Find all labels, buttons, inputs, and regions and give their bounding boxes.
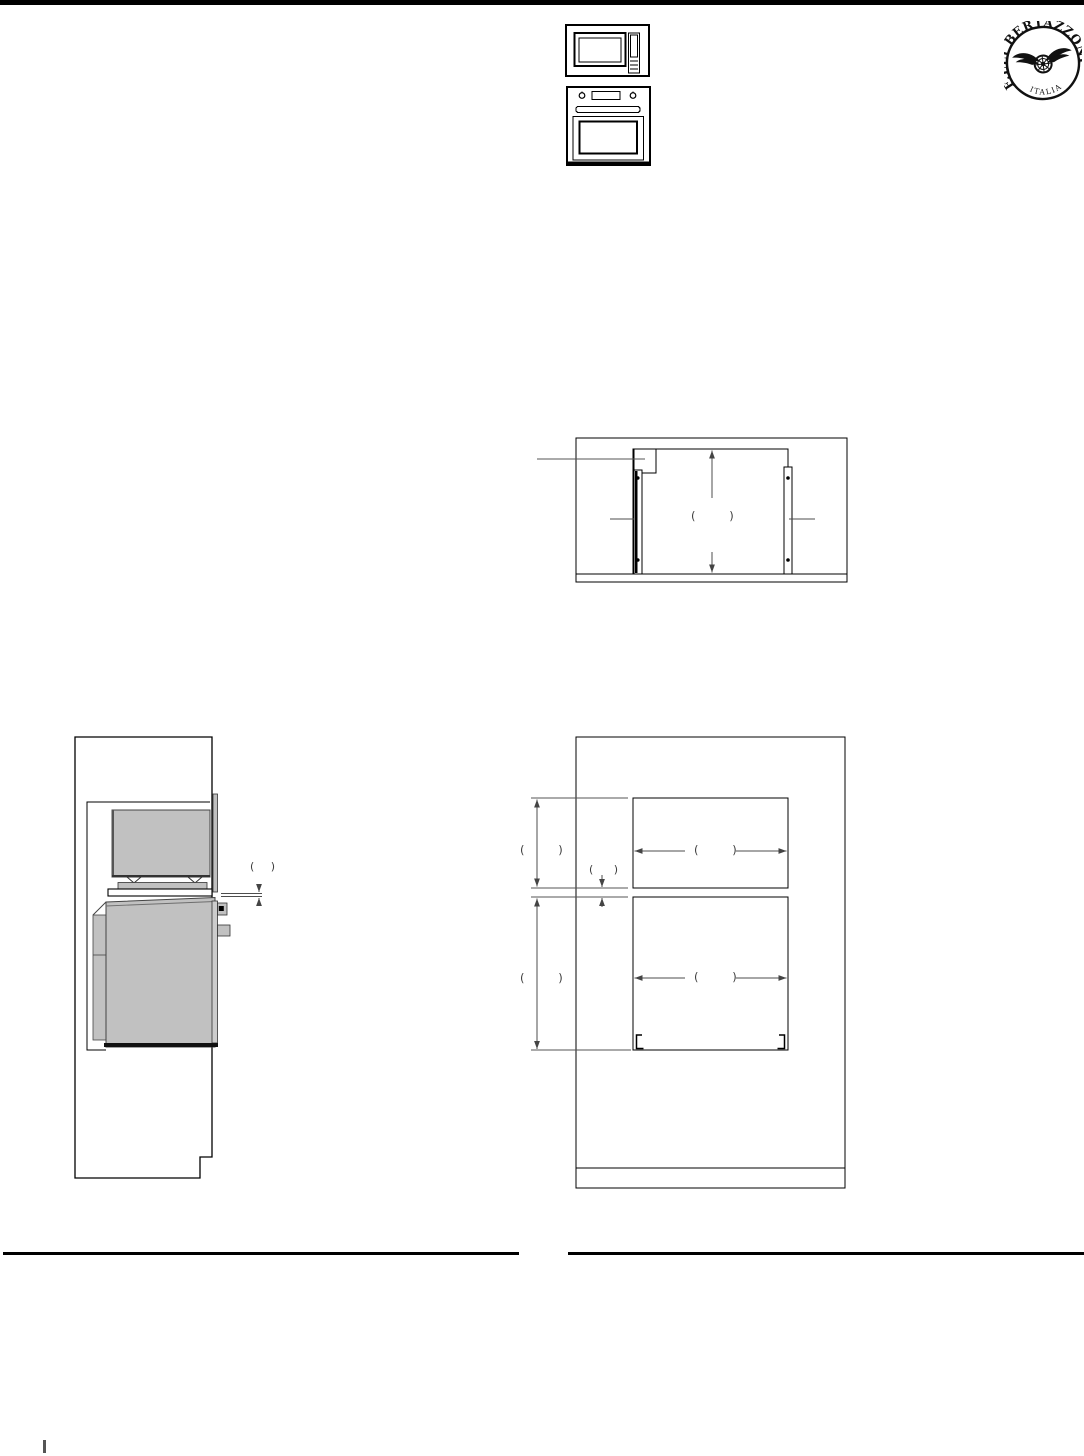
cutout-height-label: ( ) xyxy=(691,511,734,523)
lower-niche-width-label: ( ) xyxy=(694,972,737,984)
appliance-stack-illustration xyxy=(556,16,656,170)
microwave-base-plate xyxy=(118,883,207,890)
microwave-front-icon xyxy=(566,25,649,76)
upper-niche-width-label: ( ) xyxy=(694,845,737,857)
niche-gap-label: ( ) xyxy=(589,864,619,875)
microwave-side-body xyxy=(112,810,210,883)
screw-dot xyxy=(636,476,640,480)
microwave-control-strip xyxy=(629,33,640,73)
mounting-rail-left xyxy=(634,470,642,574)
microwave-front-panel xyxy=(213,794,218,892)
outlet-notch xyxy=(634,449,656,473)
oven-door-panel xyxy=(212,901,218,1043)
screw-dot xyxy=(636,558,640,562)
front-elevation-diagram xyxy=(515,725,860,1195)
wall-oven-front-icon xyxy=(567,87,650,165)
shelf-board xyxy=(108,889,212,896)
footer-divider-left xyxy=(3,1252,519,1255)
oven-side-body xyxy=(93,898,230,1048)
screw-dot xyxy=(786,476,790,480)
header-bar xyxy=(0,0,1084,5)
winged-wheel-icon xyxy=(1012,47,1074,76)
lower-niche-height-label: ( ) xyxy=(520,973,563,985)
bertazzoni-logo: F.LLI BERTAZZONI ITALIA xyxy=(1004,21,1082,105)
oven-hinge-block-lower xyxy=(218,925,231,936)
side-section-diagram xyxy=(60,725,285,1195)
manual-page: F.LLI BERTAZZONI ITALIA xyxy=(0,0,1084,1456)
upper-niche-height-label: ( ) xyxy=(520,845,563,857)
footer-divider-right xyxy=(568,1252,1084,1255)
oven-handle xyxy=(576,107,640,113)
oven-base-strip xyxy=(104,1043,218,1047)
spine-mark xyxy=(43,1440,46,1453)
shelf-gap-label: ( ) xyxy=(250,861,276,872)
oven-hinge-block-upper xyxy=(218,903,228,915)
cutout-top-view-diagram xyxy=(524,430,854,588)
mounting-rail-right xyxy=(784,467,792,574)
screw-dot xyxy=(786,558,790,562)
oven-display xyxy=(592,92,620,100)
